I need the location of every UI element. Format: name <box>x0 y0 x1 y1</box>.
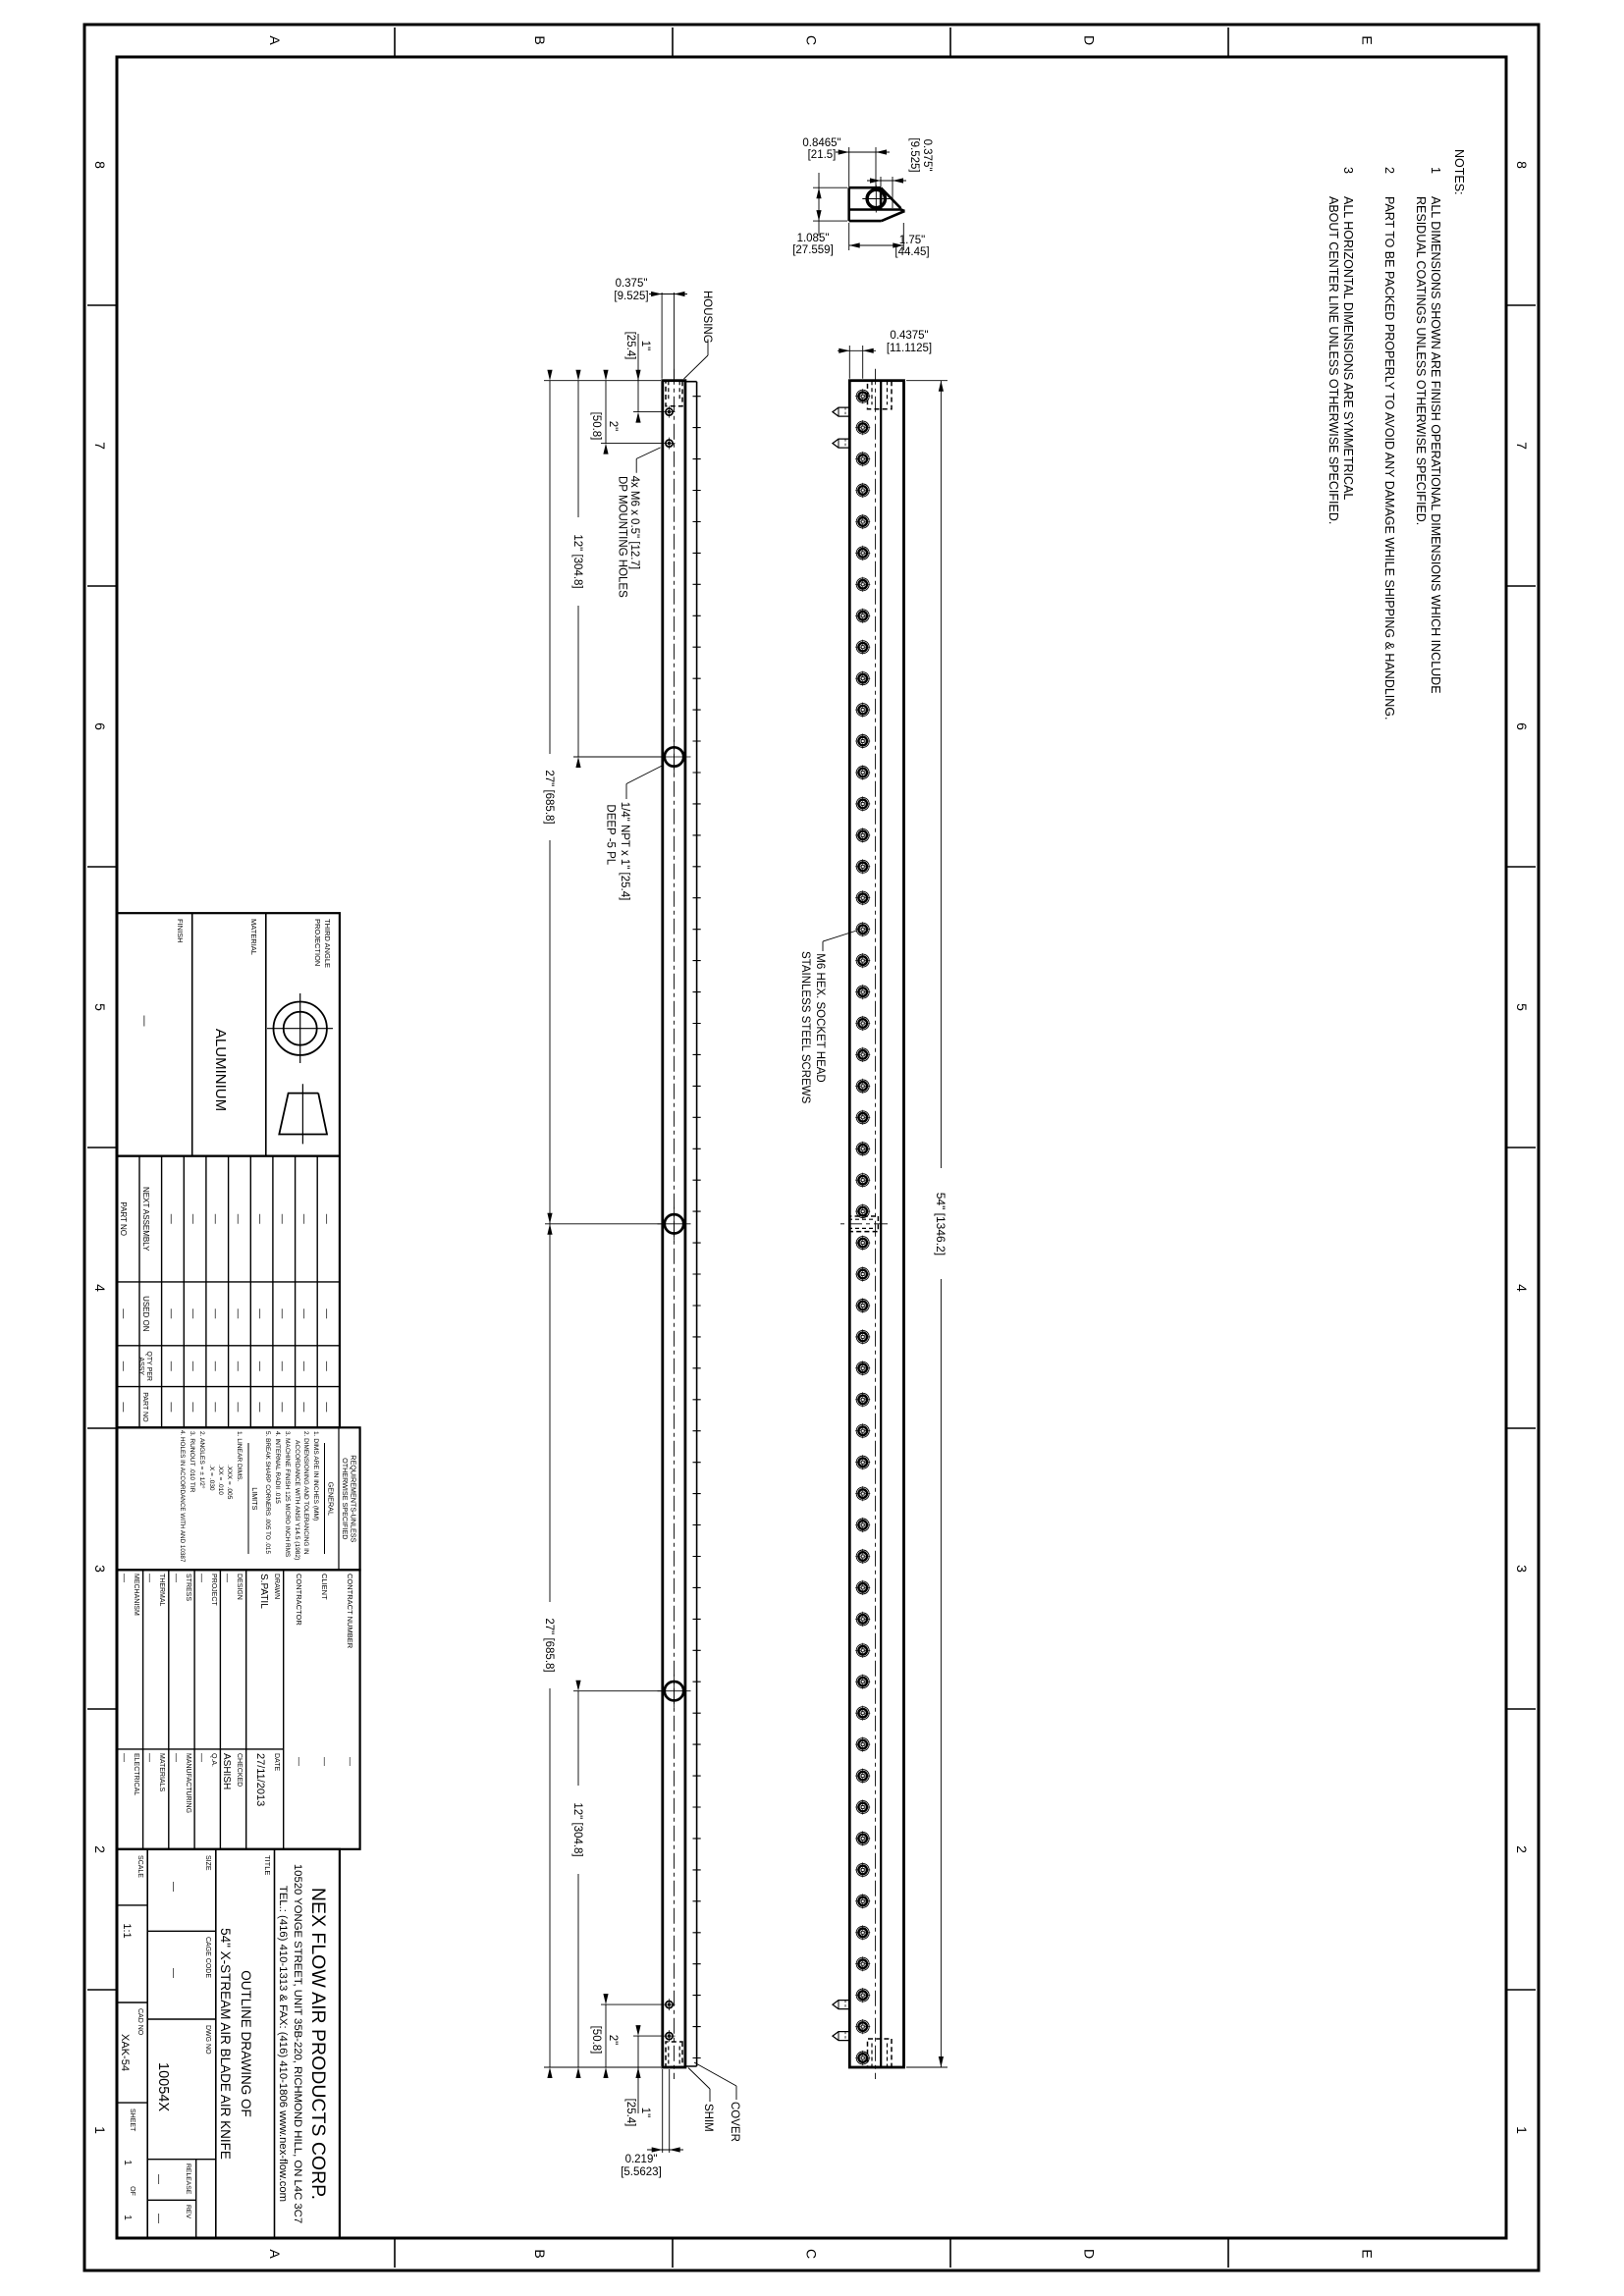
svg-text:—: — <box>153 2174 164 2184</box>
svg-text:—: — <box>165 1402 176 1412</box>
svg-text:—: — <box>277 1402 288 1412</box>
svg-text:OTHERWISE SPECIFIED: OTHERWISE SPECIFIED <box>341 1458 350 1539</box>
svg-text:6: 6 <box>92 722 108 730</box>
svg-text:—: — <box>138 1016 150 1027</box>
svg-text:2": 2" <box>607 421 619 431</box>
svg-text:—: — <box>321 1308 332 1318</box>
svg-text:—: — <box>145 1574 155 1582</box>
svg-text:[25.4]: [25.4] <box>624 332 636 360</box>
svg-text:—: — <box>165 1214 176 1224</box>
svg-text:COVER: COVER <box>729 2102 740 2142</box>
svg-text:3: 3 <box>92 1565 108 1573</box>
svg-text:—: — <box>168 1882 179 1892</box>
svg-text:CONTRACTOR: CONTRACTOR <box>295 1574 303 1626</box>
svg-text:[50.8]: [50.8] <box>590 2026 602 2055</box>
svg-text:CONTRACT NUMBER: CONTRACT NUMBER <box>346 1574 354 1649</box>
svg-text:THERMAL: THERMAL <box>158 1574 165 1607</box>
svg-text:DWG NO: DWG NO <box>204 2025 211 2055</box>
svg-text:NOTES:: NOTES: <box>1452 149 1466 195</box>
svg-text:SHEET: SHEET <box>129 2109 135 2132</box>
svg-text:—: — <box>321 1214 332 1224</box>
svg-text:—: — <box>320 1757 330 1766</box>
svg-text:—: — <box>277 1214 288 1224</box>
svg-text:E: E <box>1360 2249 1376 2258</box>
svg-text:2. ANGLES = ± 1/2°: 2. ANGLES = ± 1/2° <box>198 1431 206 1489</box>
svg-text:E: E <box>1360 35 1376 44</box>
svg-text:—: — <box>298 1308 309 1318</box>
svg-text:—: — <box>145 1753 155 1762</box>
svg-text:7: 7 <box>92 442 108 450</box>
svg-text:PART TO BE PACKED PROPERLY: PART TO BE PACKED PROPERLY TO AVOID ANY … <box>1382 196 1396 721</box>
svg-text:—: — <box>298 1402 309 1412</box>
svg-text:1: 1 <box>122 2160 133 2165</box>
svg-text:2": 2" <box>607 2035 619 2045</box>
svg-text:XAK-54: XAK-54 <box>119 2034 131 2071</box>
svg-text:1.75": 1.75" <box>899 235 925 246</box>
svg-text:CHECKED: CHECKED <box>236 1753 243 1787</box>
svg-text:—: — <box>153 2214 164 2223</box>
svg-text:.XX = .010: .XX = .010 <box>217 1465 224 1495</box>
svg-text:D: D <box>1082 2249 1098 2259</box>
svg-text:OF: OF <box>129 2186 135 2196</box>
svg-text:1/4" NPT x 1" [25.4]: 1/4" NPT x 1" [25.4] <box>619 802 630 901</box>
svg-text:—: — <box>321 1362 332 1371</box>
svg-text:—: — <box>188 1214 198 1224</box>
svg-text:27" [685.8]: 27" [685.8] <box>543 770 555 824</box>
svg-text:1:1: 1:1 <box>121 1923 133 1938</box>
svg-text:STRESS: STRESS <box>185 1574 191 1601</box>
svg-text:REQUIREMENTS-UNLESS: REQUIREMENTS-UNLESS <box>350 1455 358 1542</box>
svg-text:CLIENT: CLIENT <box>320 1574 329 1600</box>
svg-text:HOUSING: HOUSING <box>701 291 713 344</box>
svg-text:—: — <box>298 1214 309 1224</box>
svg-text:—: — <box>254 1214 265 1224</box>
svg-text:[9.525]: [9.525] <box>614 291 648 302</box>
svg-text:C: C <box>804 35 820 45</box>
svg-text:54" X-STREAM AIR BLADE AIR: 54" X-STREAM AIR BLADE AIR KNIFE <box>218 1928 233 2160</box>
svg-text:RELEASE: RELEASE <box>185 2163 191 2195</box>
svg-text:1: 1 <box>122 2215 133 2220</box>
svg-text:—: — <box>172 1574 182 1582</box>
svg-text:MATERIALS: MATERIALS <box>158 1753 165 1791</box>
svg-text:NEXT ASSEMBLY: NEXT ASSEMBLY <box>141 1187 150 1252</box>
svg-text:GENERAL: GENERAL <box>327 1482 336 1516</box>
svg-text:—: — <box>321 1402 332 1412</box>
svg-text:8: 8 <box>92 161 108 169</box>
svg-text:2. DIMENSIONING AND TOLERANCIN: 2. DIMENSIONING AND TOLERANCING IN <box>302 1431 309 1555</box>
svg-text:—: — <box>254 1362 265 1371</box>
svg-text:M6 HEX. SOCKET HEAD: M6 HEX. SOCKET HEAD <box>814 953 826 1082</box>
svg-text:PROJECT: PROJECT <box>210 1574 217 1606</box>
svg-text:—: — <box>210 1214 221 1224</box>
svg-text:1. LINEAR DIMS.: 1. LINEAR DIMS. <box>236 1431 243 1481</box>
svg-text:ACCORDANCE WITH ANSI Y14.5 (19: ACCORDANCE WITH ANSI Y14.5 (1982) <box>294 1440 300 1560</box>
svg-text:4x M6 x 0.5" [12.7]: 4x M6 x 0.5" [12.7] <box>628 476 640 569</box>
svg-text:0.375": 0.375" <box>616 278 648 290</box>
svg-text:DEEP -5 PL: DEEP -5 PL <box>604 804 616 865</box>
svg-text:8: 8 <box>1514 161 1530 169</box>
svg-text:—: — <box>232 1362 243 1371</box>
svg-text:0.4375": 0.4375" <box>890 330 928 342</box>
svg-text:—: — <box>188 1308 198 1318</box>
svg-text:6: 6 <box>1514 722 1530 730</box>
svg-text:[5.5623]: [5.5623] <box>621 2166 662 2178</box>
svg-text:—: — <box>172 1753 182 1762</box>
svg-text:10520 YONGE STREET, UNIT 35B-2: 10520 YONGE STREET, UNIT 35B-220, RICHMO… <box>292 1864 303 2223</box>
svg-text:ALL DIMENSIONS SHOWN ARE F: ALL DIMENSIONS SHOWN ARE FINISH OPERATIO… <box>1429 196 1442 694</box>
svg-text:ALL HORIZONTAL DIMENSIONS A: ALL HORIZONTAL DIMENSIONS ARE SYMMETRICA… <box>1341 196 1355 500</box>
svg-text:—: — <box>210 1402 221 1412</box>
svg-text:—: — <box>120 1574 130 1582</box>
svg-text:ALUMINIUM: ALUMINIUM <box>212 1029 229 1111</box>
svg-text:—: — <box>277 1308 288 1318</box>
svg-text:PART NO: PART NO <box>119 1201 128 1236</box>
svg-text:0.219": 0.219" <box>625 2154 658 2165</box>
svg-text:1": 1" <box>639 341 651 350</box>
svg-text:—: — <box>295 1757 304 1766</box>
svg-text:—: — <box>298 1362 309 1371</box>
svg-text:1. DIMS ARE IN INCHES (MM): 1. DIMS ARE IN INCHES (MM) <box>312 1431 319 1521</box>
svg-text:—: — <box>254 1402 265 1412</box>
svg-text:REV: REV <box>185 2205 191 2218</box>
svg-text:—: — <box>188 1402 198 1412</box>
svg-text:CAGE CODE: CAGE CODE <box>204 1937 211 1978</box>
svg-text:ELECTRICAL: ELECTRICAL <box>133 1753 139 1795</box>
svg-text:3: 3 <box>1341 167 1355 174</box>
svg-text:LIMITS: LIMITS <box>250 1487 259 1510</box>
svg-text:ABOUT CENTER LINE UNLESS O: ABOUT CENTER LINE UNLESS OTHERWISE SPECI… <box>1326 196 1340 524</box>
svg-text:THIRD ANGLE: THIRD ANGLE <box>323 919 332 968</box>
svg-text:—: — <box>118 1362 129 1371</box>
svg-text:ASSY: ASSY <box>137 1357 144 1375</box>
svg-text:[44.45]: [44.45] <box>894 246 929 258</box>
svg-text:—: — <box>118 1308 129 1318</box>
svg-text:MATERIAL: MATERIAL <box>249 919 258 955</box>
svg-text:ASHISH: ASHISH <box>221 1753 232 1789</box>
svg-text:3: 3 <box>1514 1565 1530 1573</box>
svg-text:1: 1 <box>1429 167 1442 174</box>
svg-text:.X = .030: .X = .030 <box>208 1465 215 1491</box>
svg-text:4: 4 <box>1514 1284 1530 1292</box>
svg-text:Q.A.: Q.A. <box>210 1753 217 1767</box>
svg-text:MANUFACTURING: MANUFACTURING <box>185 1753 191 1813</box>
svg-text:5: 5 <box>1514 1003 1530 1011</box>
svg-text:SCALE: SCALE <box>136 1855 143 1878</box>
svg-text:USED ON: USED ON <box>141 1296 150 1332</box>
svg-text:3. MACHINE FINISH 125 MICRO IN: 3. MACHINE FINISH 125 MICRO INCH RMS <box>284 1431 291 1557</box>
svg-text:—: — <box>197 1574 207 1582</box>
svg-text:PROJECTION: PROJECTION <box>313 919 322 966</box>
svg-text:—: — <box>254 1308 265 1318</box>
svg-text:4: 4 <box>92 1284 108 1292</box>
svg-text:10054X: 10054X <box>155 2062 171 2111</box>
svg-text:TITLE: TITLE <box>263 1855 272 1875</box>
svg-text:DESIGN: DESIGN <box>236 1574 243 1600</box>
svg-text:NEX FLOW AIR PRODUCTS CORP: NEX FLOW AIR PRODUCTS CORP. <box>307 1888 329 2200</box>
svg-text:5. BREAK SHARP CORNERS .005 TO: 5. BREAK SHARP CORNERS .005 TO .015 <box>264 1431 271 1554</box>
svg-text:—: — <box>346 1757 355 1766</box>
svg-text:FINISH: FINISH <box>176 919 185 943</box>
svg-text:—: — <box>210 1362 221 1371</box>
svg-text:QTY PER: QTY PER <box>145 1351 152 1381</box>
svg-text:—: — <box>232 1214 243 1224</box>
svg-text:—: — <box>197 1753 207 1762</box>
svg-text:SIZE: SIZE <box>204 1855 211 1871</box>
svg-text:5: 5 <box>92 1003 108 1011</box>
svg-text:DRAWN: DRAWN <box>273 1574 280 1599</box>
svg-text:A: A <box>267 35 283 45</box>
svg-text:—: — <box>223 1574 233 1582</box>
svg-text:—: — <box>277 1362 288 1371</box>
svg-text:—: — <box>165 1362 176 1371</box>
svg-text:[11.1125]: [11.1125] <box>887 343 932 354</box>
svg-text:SHIM: SHIM <box>702 2104 714 2132</box>
svg-text:MECHANISM: MECHANISM <box>133 1574 139 1616</box>
svg-text:2: 2 <box>92 1845 108 1853</box>
svg-text:1": 1" <box>639 2108 651 2117</box>
svg-text:C: C <box>804 2249 820 2259</box>
svg-text:CAD NO: CAD NO <box>136 2008 143 2036</box>
svg-text:D: D <box>1082 35 1098 45</box>
svg-text:—: — <box>168 1968 179 1978</box>
svg-text:DATE: DATE <box>273 1753 280 1771</box>
svg-text:0.375": 0.375" <box>921 139 933 172</box>
svg-text:B: B <box>532 2249 548 2258</box>
svg-text:1: 1 <box>1514 2126 1530 2134</box>
svg-text:1: 1 <box>92 2126 108 2134</box>
svg-text:DP MOUNTING HOLES: DP MOUNTING HOLES <box>617 476 628 598</box>
svg-text:RESIDUAL COATINGS UNLESS OT: RESIDUAL COATINGS UNLESS OTHERWISE SPECI… <box>1414 196 1428 525</box>
svg-text:4. INTERNAL RADII .015: 4. INTERNAL RADII .015 <box>274 1431 281 1504</box>
svg-text:2: 2 <box>1382 167 1396 174</box>
svg-text:—: — <box>232 1308 243 1318</box>
svg-text:27" [685.8]: 27" [685.8] <box>543 1618 555 1672</box>
svg-text:—: — <box>188 1362 198 1371</box>
svg-text:—: — <box>118 1402 129 1412</box>
svg-text:.XXX = .005: .XXX = .005 <box>226 1465 233 1500</box>
svg-text:—: — <box>210 1308 221 1318</box>
svg-text:7: 7 <box>1514 442 1530 450</box>
svg-text:STAINLESS STEEL SCREWS: STAINLESS STEEL SCREWS <box>799 951 811 1104</box>
svg-text:1.085": 1.085" <box>797 233 830 244</box>
svg-text:2: 2 <box>1514 1845 1530 1853</box>
svg-text:—: — <box>165 1308 176 1318</box>
svg-text:[9.525]: [9.525] <box>908 137 920 172</box>
svg-text:S.PATIL: S.PATIL <box>258 1574 269 1609</box>
svg-text:27/11/2013: 27/11/2013 <box>254 1753 266 1806</box>
svg-text:12" [304.8]: 12" [304.8] <box>571 534 583 588</box>
svg-text:[21.5]: [21.5] <box>808 149 837 161</box>
svg-text:[25.4]: [25.4] <box>624 2099 636 2127</box>
svg-text:0.8465": 0.8465" <box>802 137 840 149</box>
svg-text:[27.559]: [27.559] <box>792 244 834 256</box>
svg-text:3. RUNOUT .010 TIR: 3. RUNOUT .010 TIR <box>189 1431 195 1493</box>
svg-text:TEL.: (416) 410-1313 & FAX: (4: TEL.: (416) 410-1313 & FAX: (416) 410-18… <box>277 1886 289 2202</box>
svg-text:—: — <box>120 1753 130 1762</box>
svg-text:OUTLINE DRAWING OF: OUTLINE DRAWING OF <box>239 1970 253 2117</box>
svg-text:4. HOLES IN ACCORDANCE WITH AN: 4. HOLES IN ACCORDANCE WITH AND 10387 <box>179 1430 186 1563</box>
svg-text:B: B <box>532 35 548 44</box>
svg-text:—: — <box>232 1402 243 1412</box>
svg-text:12" [304.8]: 12" [304.8] <box>571 1802 583 1856</box>
svg-text:A: A <box>267 2249 283 2259</box>
svg-text:PART NO: PART NO <box>141 1392 148 1422</box>
svg-text:[50.8]: [50.8] <box>590 412 602 441</box>
svg-text:54" [1346.2]: 54" [1346.2] <box>934 1193 947 1255</box>
